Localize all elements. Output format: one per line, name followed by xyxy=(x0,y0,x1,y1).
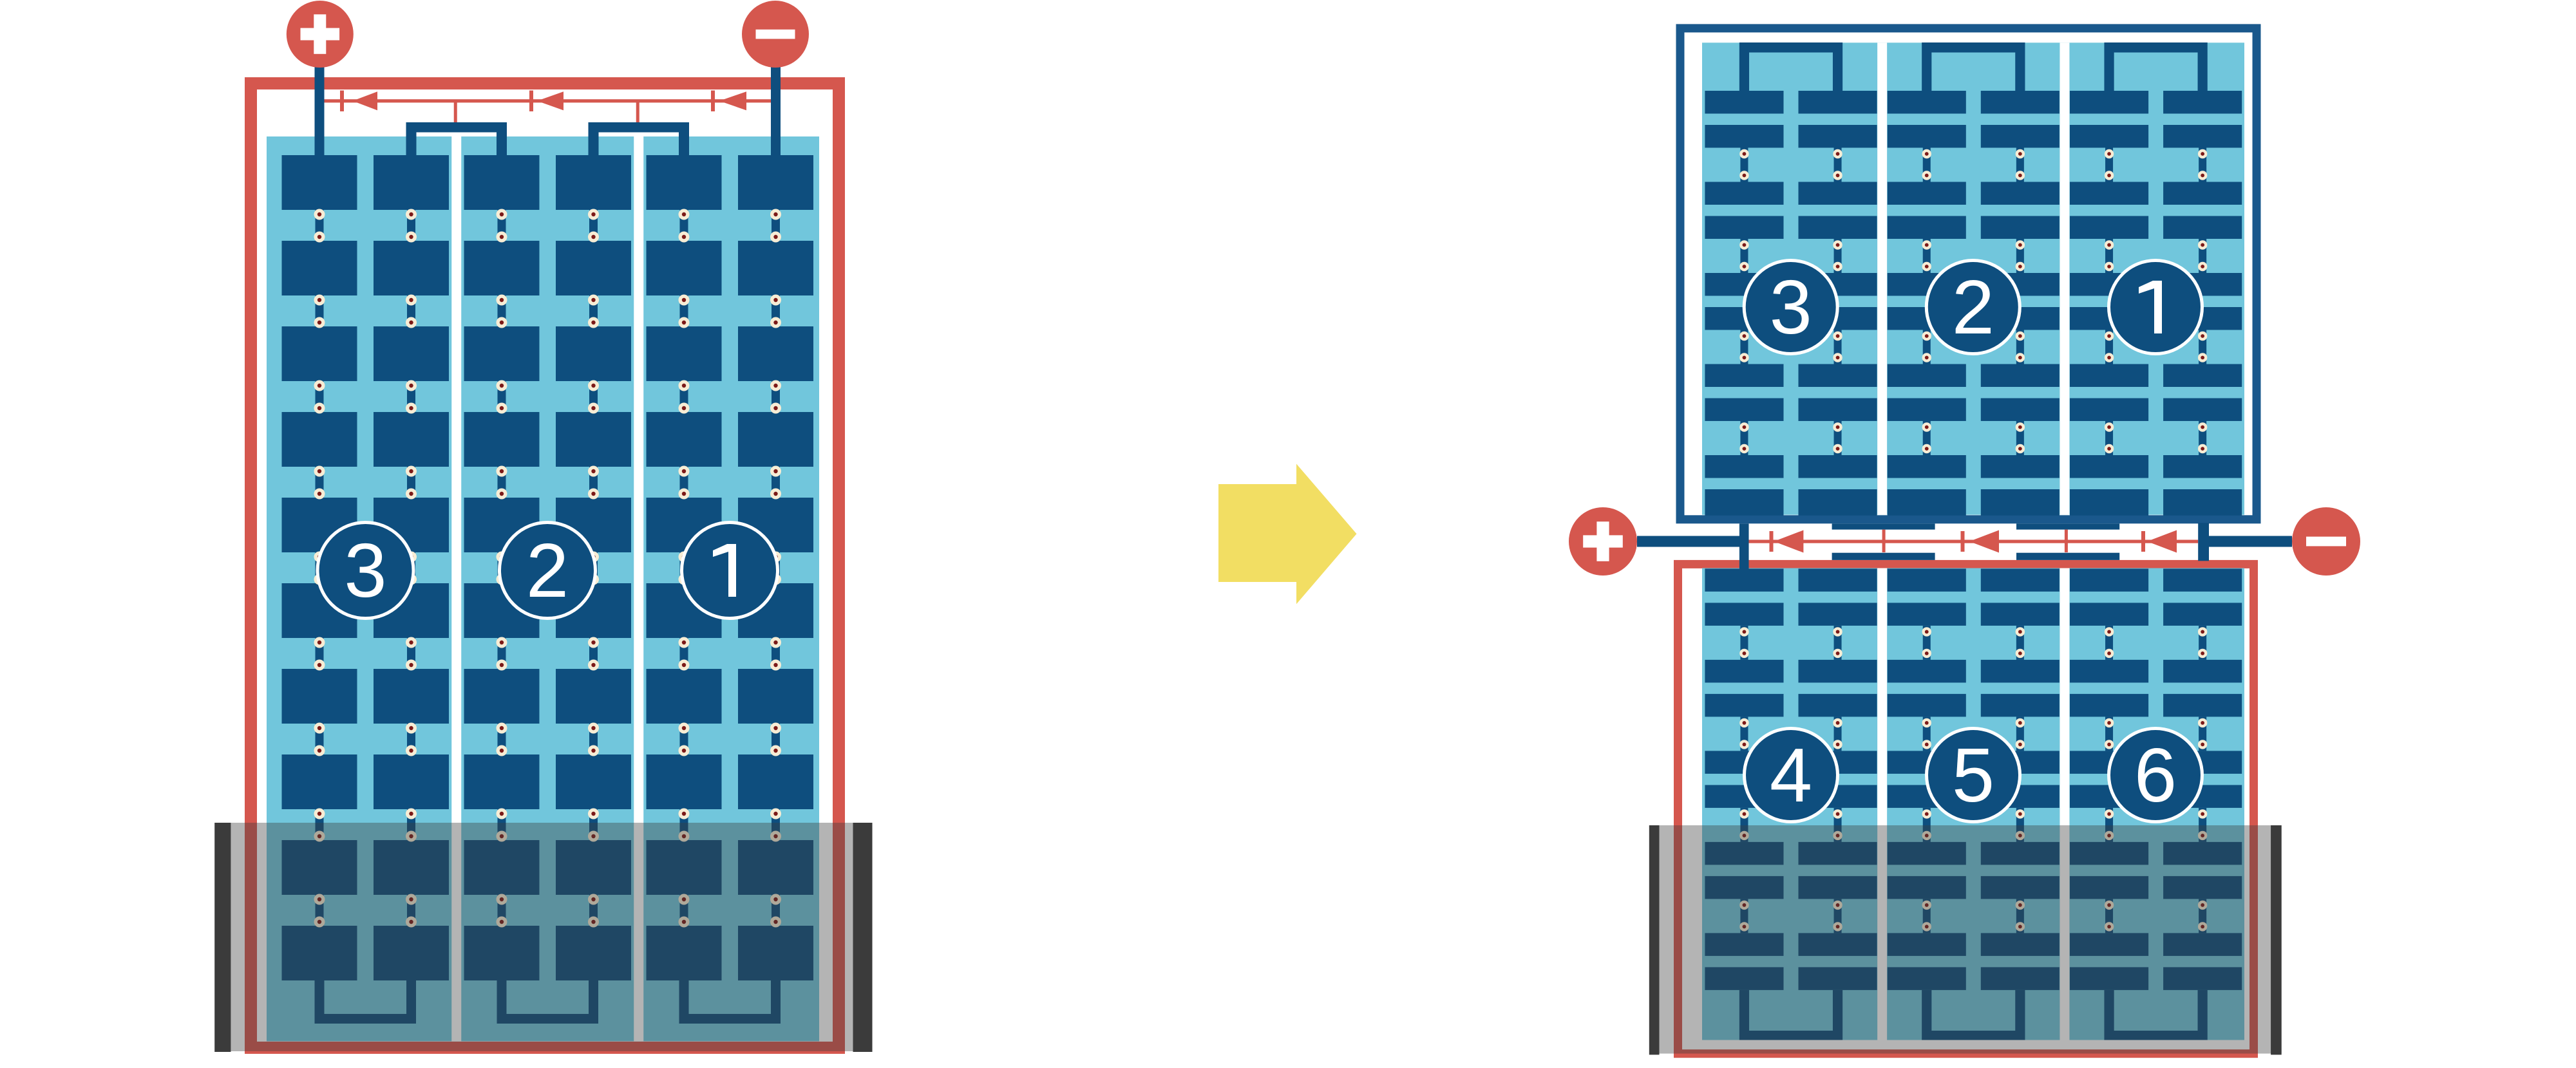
svg-text:3: 3 xyxy=(1770,265,1812,350)
svg-text:2: 2 xyxy=(526,528,569,614)
svg-text:3: 3 xyxy=(344,528,386,614)
svg-text:5: 5 xyxy=(1952,733,1994,818)
svg-text:2: 2 xyxy=(1952,265,1994,350)
svg-text:6: 6 xyxy=(2134,733,2177,818)
svg-text:4: 4 xyxy=(1770,733,1812,818)
